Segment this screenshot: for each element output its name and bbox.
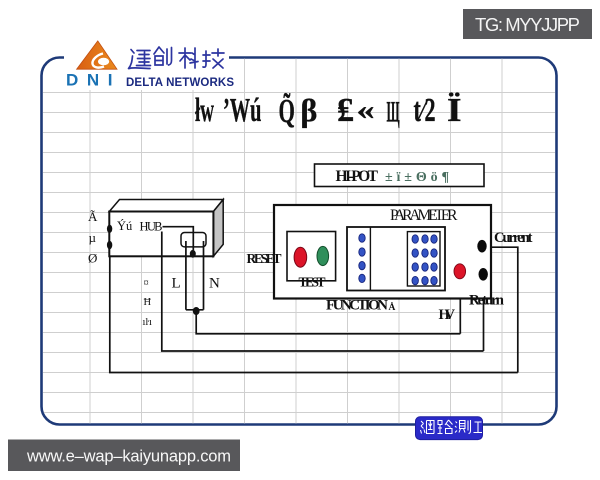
svg-text:TG: MYYJJPP: TG: MYYJJPP xyxy=(475,14,580,35)
svg-text:Q̃: Q̃ xyxy=(279,93,295,130)
svg-text:Ħ: Ħ xyxy=(144,297,152,308)
svg-text:µ: µ xyxy=(89,230,97,245)
svg-text:FUNCTION: FUNCTION xyxy=(326,298,388,314)
svg-text:Return: Return xyxy=(469,293,505,309)
svg-text:Ï: Ï xyxy=(447,91,462,129)
svg-text:PARAMETER: PARAMETER xyxy=(390,207,458,224)
svg-text:Ýú: Ýú xyxy=(117,219,133,233)
svg-text:«: « xyxy=(357,94,375,126)
svg-text:Щ: Щ xyxy=(387,95,400,128)
svg-text:Ø: Ø xyxy=(88,251,97,266)
svg-text:HV: HV xyxy=(439,307,456,323)
svg-text:DELTA NETWORKS: DELTA NETWORKS xyxy=(126,77,234,89)
svg-text:DNI: DNI xyxy=(66,71,114,90)
svg-text:RESET: RESET xyxy=(247,251,282,266)
svg-text:β: β xyxy=(301,92,318,128)
svg-text:TEST: TEST xyxy=(299,275,326,290)
svg-text:’Wú: ’Wú xyxy=(223,92,262,130)
svg-text:Ã: Ã xyxy=(88,209,98,224)
svg-text:Ȧ: Ȧ xyxy=(389,301,396,313)
svg-text:www.e–wap–kaiyunapp.com: www.e–wap–kaiyunapp.com xyxy=(26,448,231,466)
svg-text:N: N xyxy=(209,276,220,292)
svg-text:HI-POT: HI-POT xyxy=(336,168,379,185)
svg-text:ıŀı: ıŀı xyxy=(143,317,153,328)
svg-text:łw: łw xyxy=(195,90,214,128)
svg-text:HUB: HUB xyxy=(140,220,163,234)
svg-text:¤: ¤ xyxy=(144,278,149,289)
svg-text:Current: Current xyxy=(494,230,533,246)
svg-text:₤: ₤ xyxy=(337,92,354,129)
svg-text:L: L xyxy=(172,276,181,292)
svg-text:t⁄2: t⁄2 xyxy=(414,91,436,129)
